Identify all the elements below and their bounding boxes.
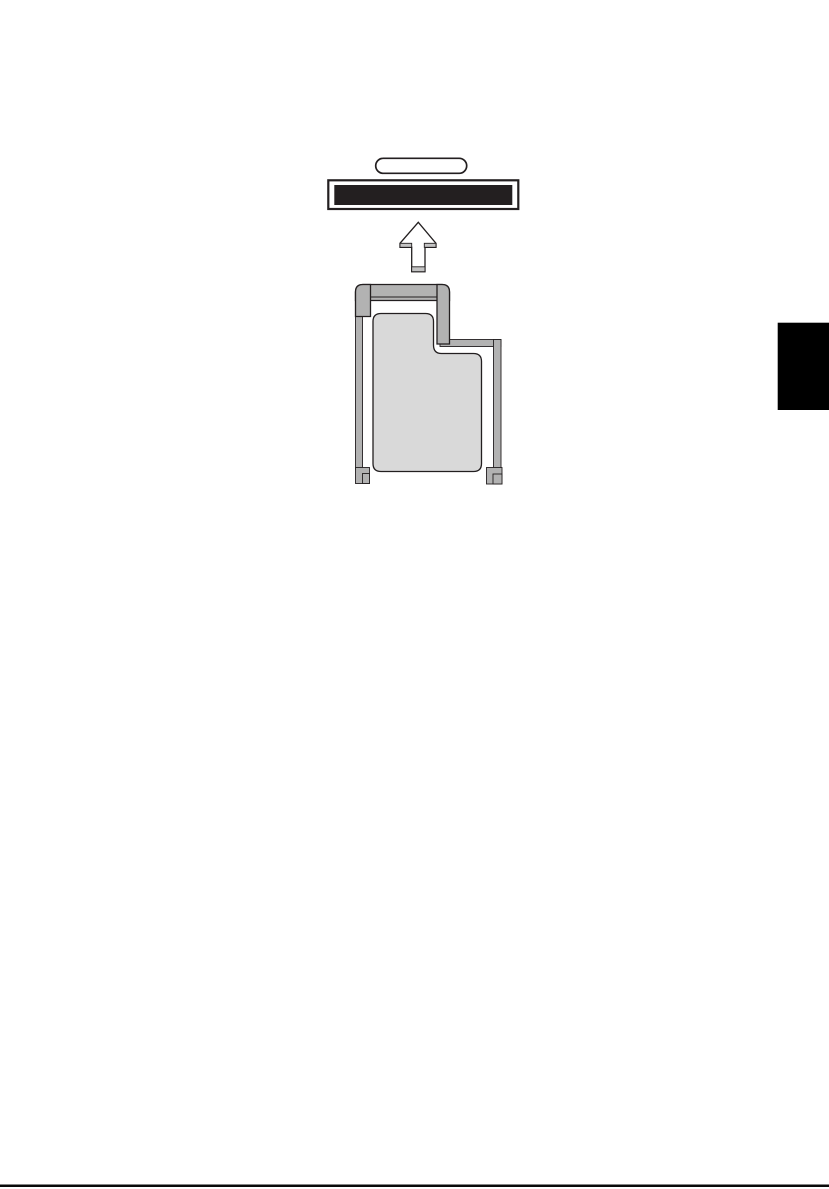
up-arrow-icon [400, 222, 436, 271]
document-page [0, 0, 829, 1189]
card-body [373, 314, 482, 472]
expresscard [356, 285, 503, 485]
expresscard-insertion-figure [0, 0, 829, 1189]
card-frame-left-rail [356, 316, 363, 470]
up-arrow-right-wing-shade [424, 243, 436, 247]
up-arrow-left-wing-shade [400, 243, 412, 247]
card-frame-left-foot-step [363, 474, 370, 484]
card-frame-right-bumper [437, 285, 450, 345]
slot-assembly [328, 158, 518, 209]
page-edge-tab [778, 323, 829, 410]
page-bottom-rule [0, 1185, 829, 1188]
eject-button [376, 158, 467, 173]
slot-opening [334, 185, 512, 205]
card-frame-right-rail [494, 340, 502, 470]
up-arrow-stem-shade [412, 267, 425, 272]
card-frame-right-foot-step [493, 474, 502, 484]
card-frame-left-bumper [356, 285, 371, 317]
